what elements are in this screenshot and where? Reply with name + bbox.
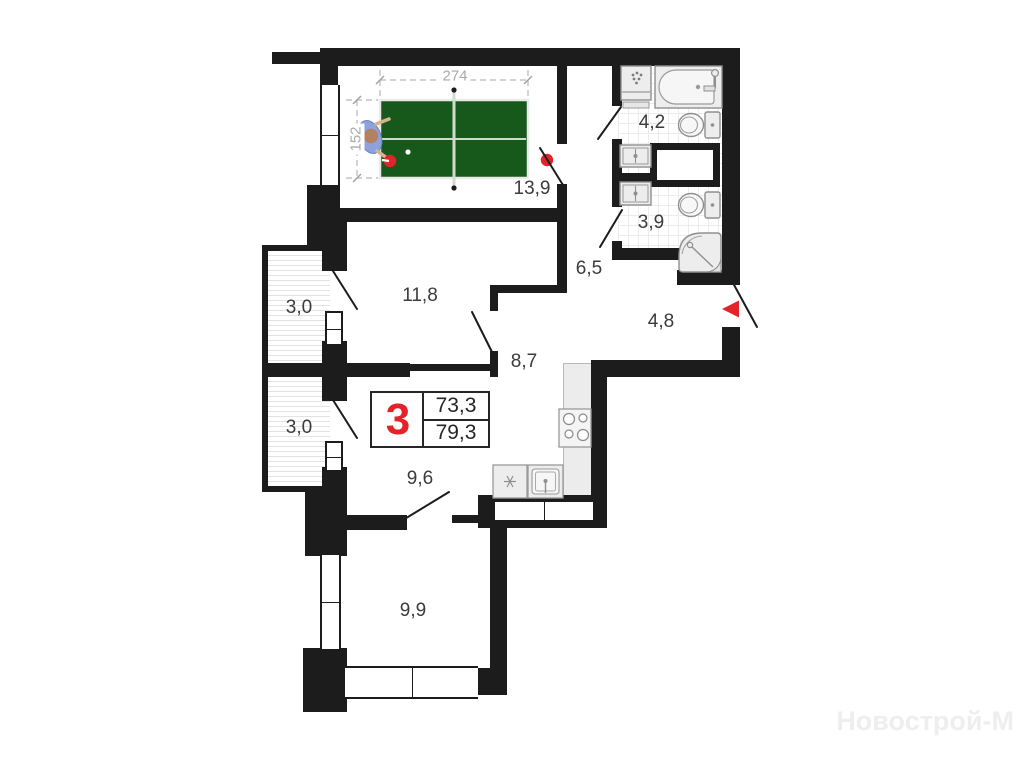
room-area-label-corridor: 6,5	[576, 258, 602, 280]
door-swing	[333, 271, 357, 309]
room-area-label-balcony-top: 3,0	[286, 297, 312, 319]
room-area-label-bathroom: 4,2	[639, 112, 665, 134]
area-value-1: 73,3	[424, 393, 488, 421]
fridge	[493, 465, 527, 498]
washing-machine	[621, 66, 651, 108]
dimension-label-width: 152	[348, 123, 365, 154]
room-area-label-balcony-bottom: 3,0	[286, 417, 312, 439]
kitchen-sink	[528, 465, 563, 498]
fixtures-overlay	[0, 0, 1024, 768]
bathtub	[655, 66, 722, 108]
watermark: Новострой-М	[822, 706, 1014, 737]
door-swing	[600, 210, 622, 247]
door-swing	[598, 107, 621, 139]
room-area-label-room-mid: 9,6	[407, 468, 433, 490]
areas-cells: 73,3 79,3	[424, 393, 488, 446]
sink	[620, 182, 651, 205]
area-value-2: 79,3	[424, 421, 488, 447]
door-swing	[472, 312, 492, 352]
rooms-count: 3	[386, 398, 408, 442]
door-swing	[403, 492, 449, 520]
room-area-label-hall: 8,7	[511, 351, 537, 373]
rooms-count-cell: 3	[372, 393, 424, 446]
entrance-marker	[722, 301, 739, 318]
dimension-label-length: 274	[439, 68, 470, 85]
shower	[679, 233, 721, 272]
room-area-label-hallway: 4,8	[648, 311, 674, 333]
toilet	[679, 192, 721, 218]
toilet	[679, 112, 721, 138]
room-area-label-living: 13,9	[514, 178, 551, 200]
room-area-label-room-bottom: 9,9	[400, 600, 426, 622]
room-area-label-bedroom: 11,8	[402, 285, 438, 307]
room-area-label-wc: 3,9	[638, 212, 664, 234]
floor-plan: 13,9 11,8 9,6 9,9 8,7 6,5 4,8 4,2 3,9 3,…	[0, 0, 1024, 768]
sink	[620, 145, 651, 167]
ping-pong-table	[380, 87, 528, 190]
door-swing	[333, 400, 357, 438]
stove	[559, 409, 591, 447]
apartment-info-box: 3 73,3 79,3	[370, 391, 490, 448]
